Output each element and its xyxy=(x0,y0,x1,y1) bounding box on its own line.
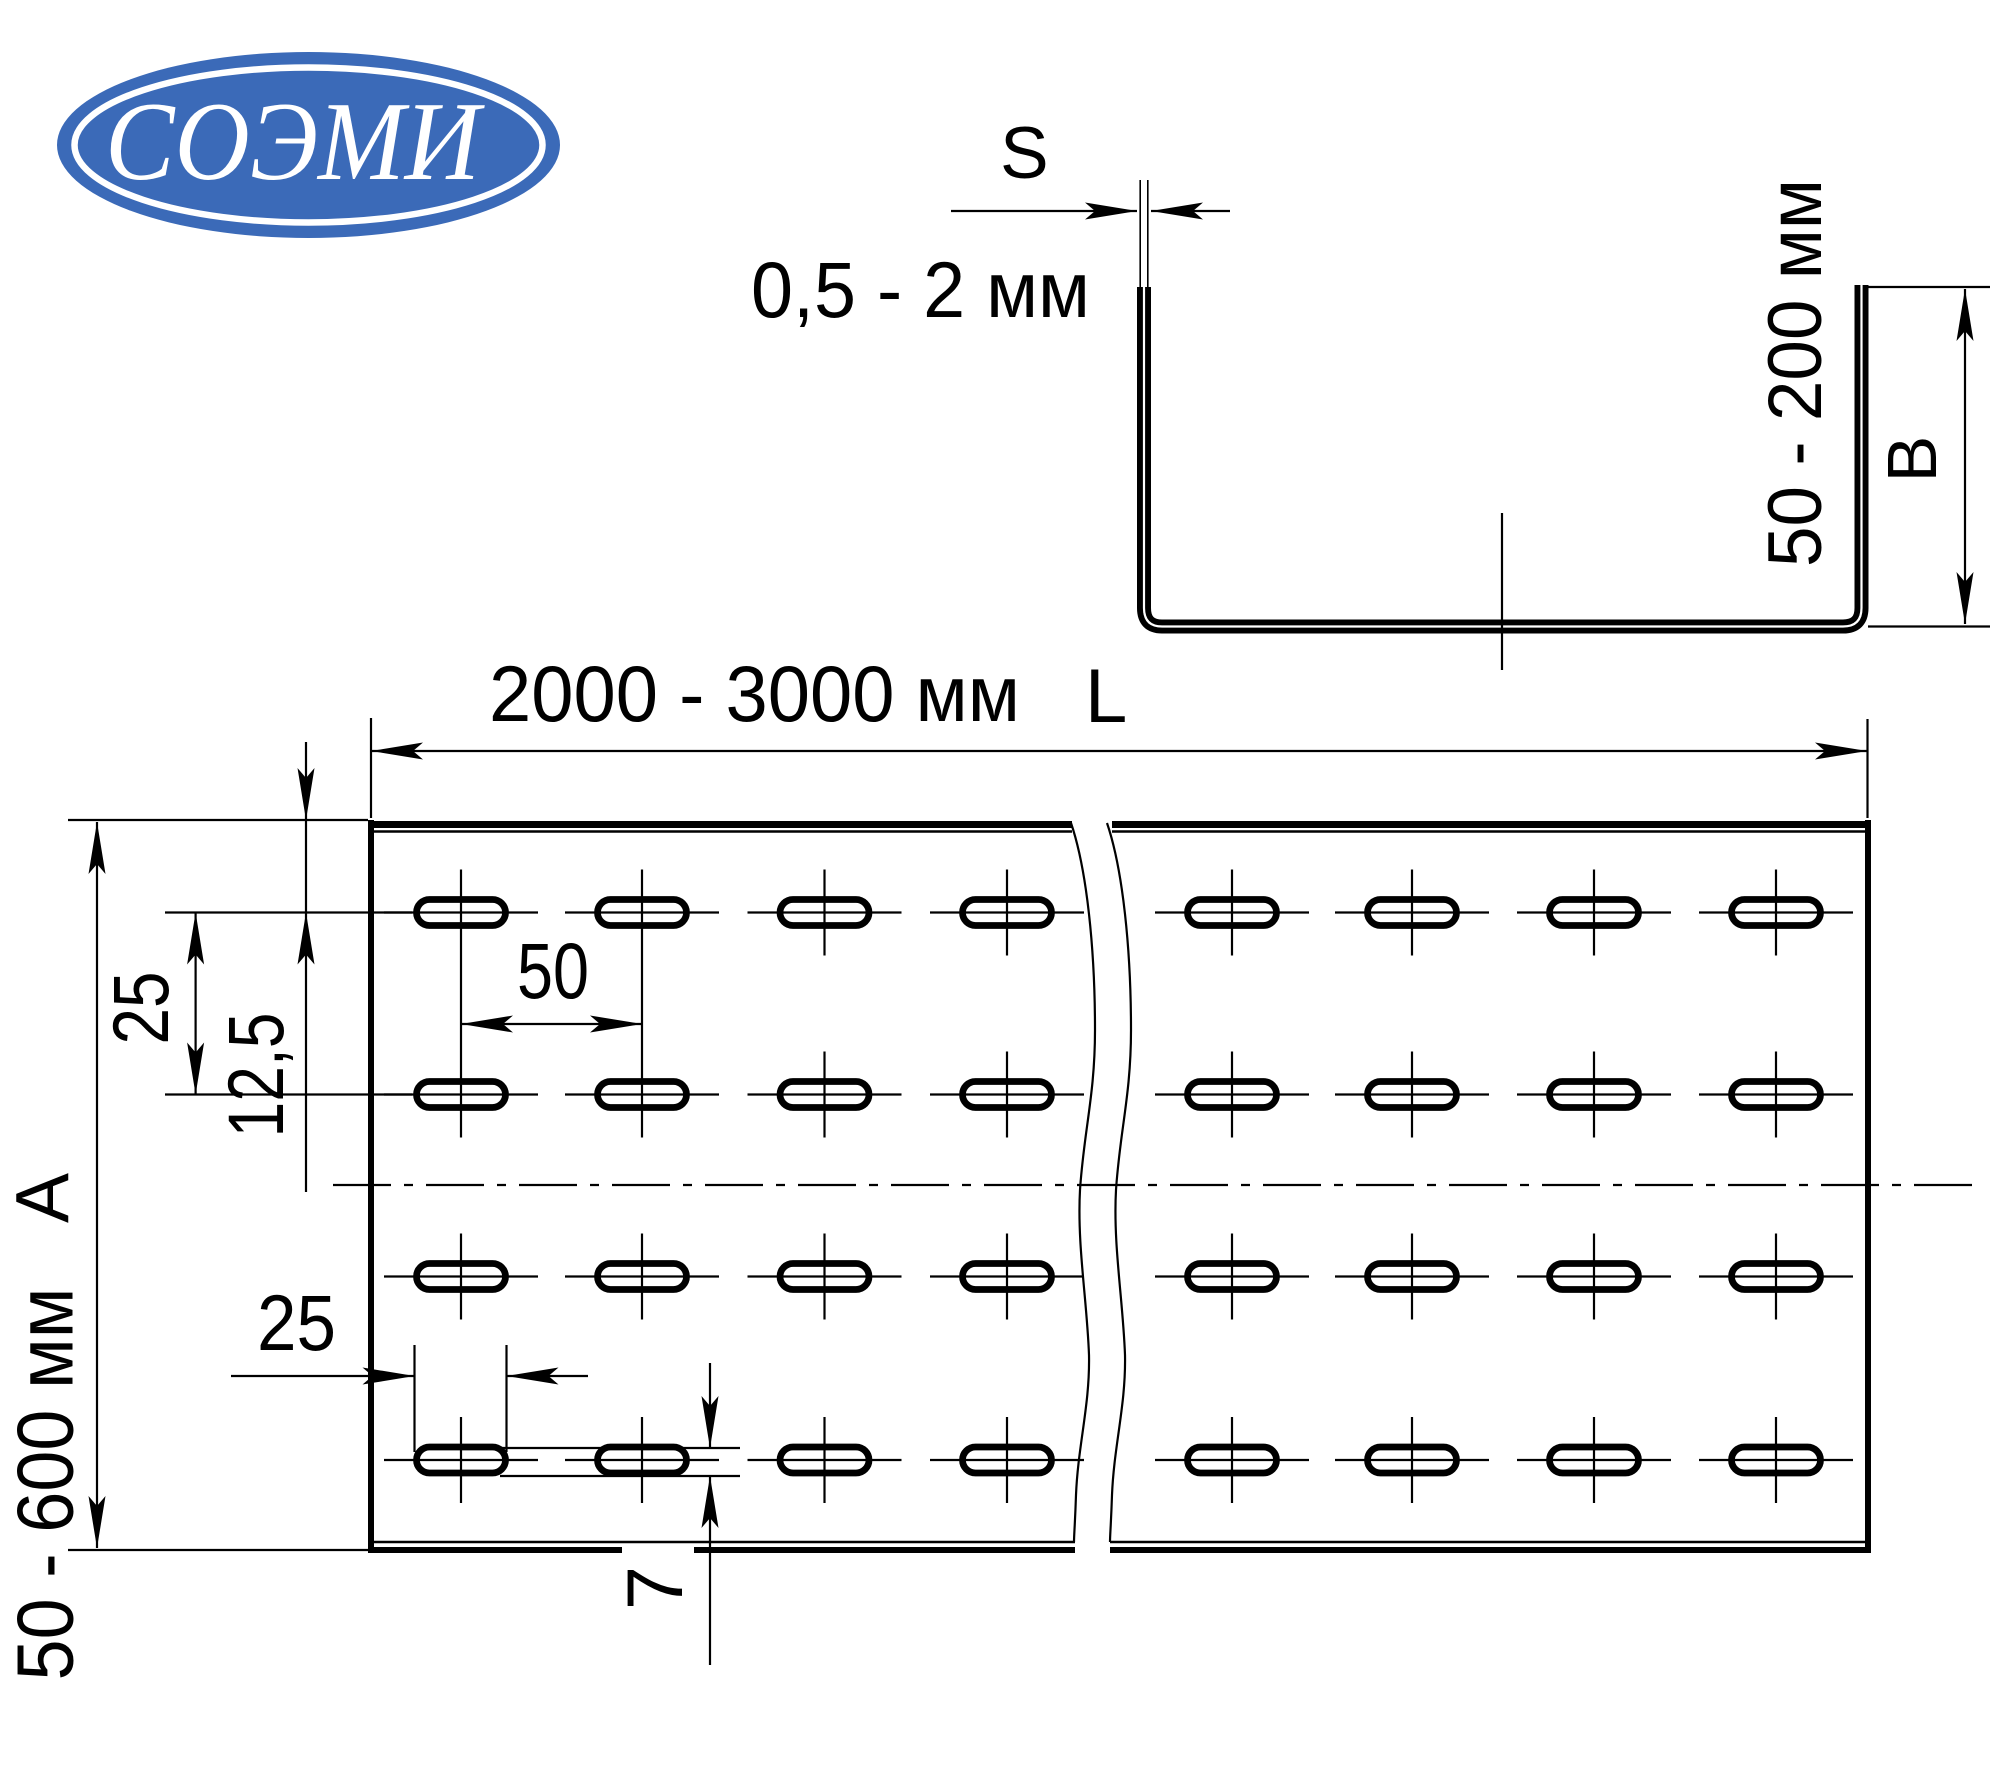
svg-text:L: L xyxy=(1085,654,1127,739)
svg-text:0,5 - 2 мм: 0,5 - 2 мм xyxy=(751,245,1090,334)
svg-text:12,5: 12,5 xyxy=(211,1013,300,1138)
svg-text:50 - 600 мм: 50 - 600 мм xyxy=(1,1288,90,1681)
svg-text:50: 50 xyxy=(517,926,589,1015)
svg-text:25: 25 xyxy=(257,1278,336,1367)
svg-text:2000 - 3000 мм: 2000 - 3000 мм xyxy=(489,649,1020,738)
svg-text:25: 25 xyxy=(96,972,185,1045)
svg-text:7: 7 xyxy=(610,1566,699,1610)
svg-text:А: А xyxy=(0,1173,84,1223)
svg-text:В: В xyxy=(1873,436,1951,483)
svg-text:50 - 200 мм: 50 - 200 мм xyxy=(1753,179,1838,567)
svg-text:СОЭМИ: СОЭМИ xyxy=(105,80,486,204)
svg-text:S: S xyxy=(1000,113,1049,194)
